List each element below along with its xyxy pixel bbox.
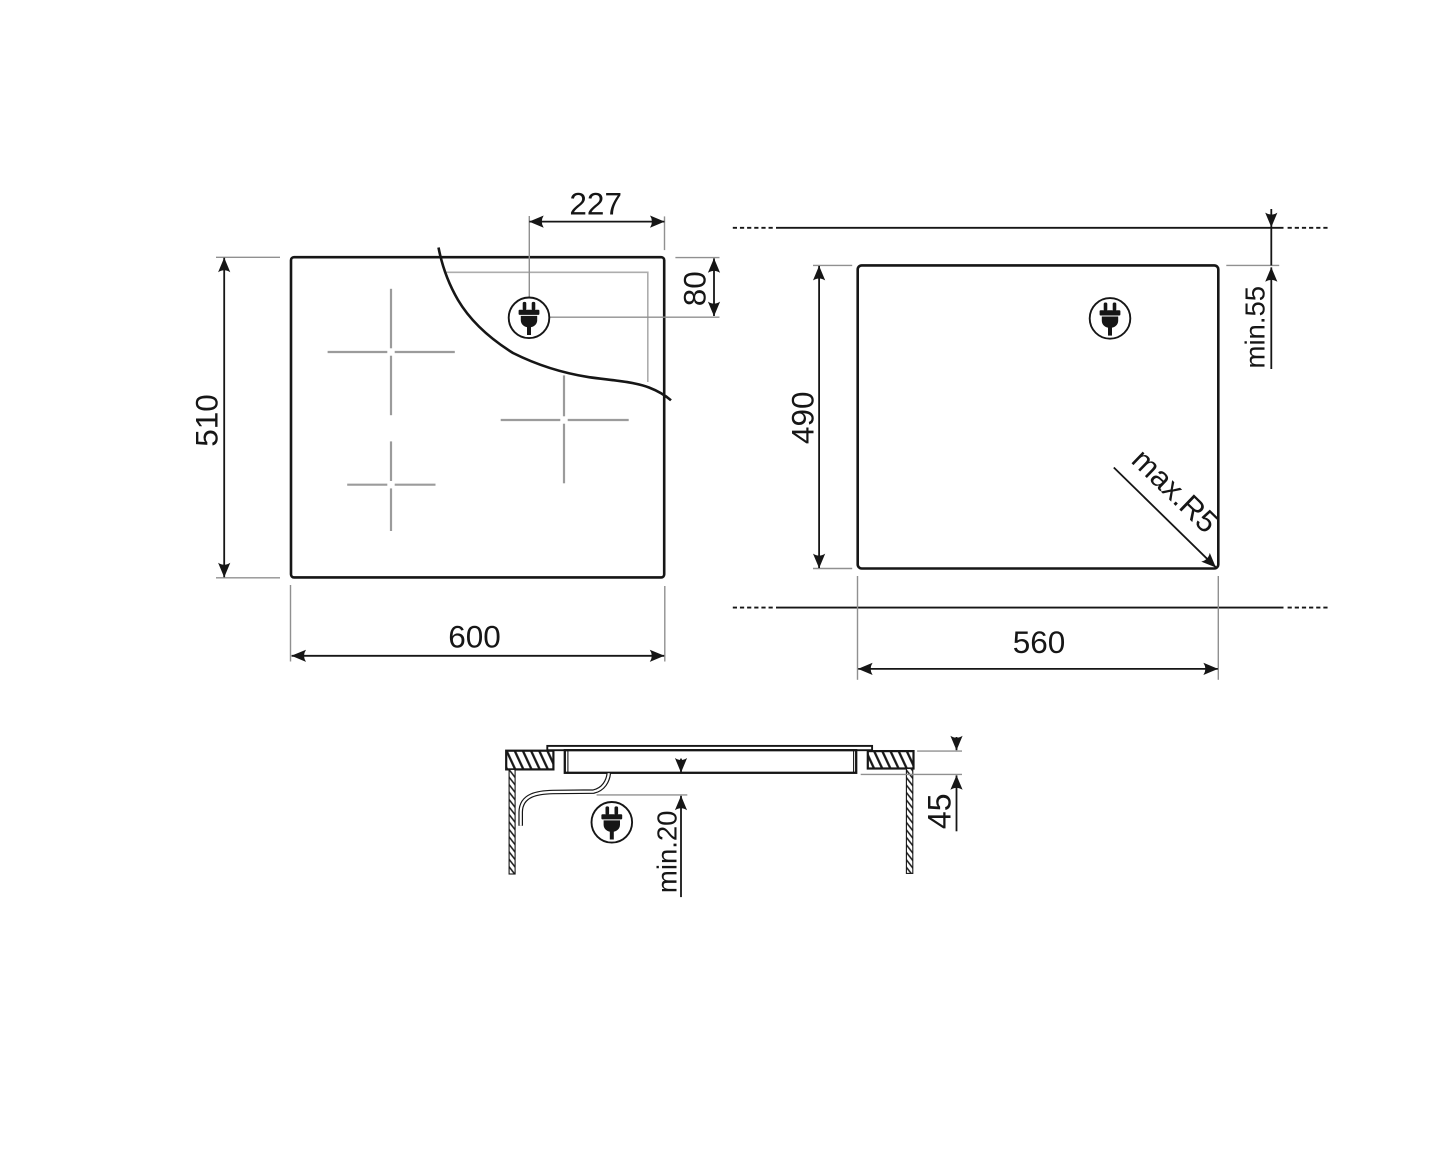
svg-text:600: 600	[448, 619, 501, 655]
svg-text:490: 490	[785, 392, 821, 445]
svg-text:min.20: min.20	[651, 811, 682, 894]
svg-text:min.55: min.55	[1240, 286, 1271, 369]
svg-text:227: 227	[569, 185, 622, 221]
svg-text:80: 80	[677, 271, 713, 306]
svg-text:45: 45	[922, 794, 958, 830]
svg-text:560: 560	[1013, 624, 1066, 660]
svg-text:510: 510	[188, 394, 224, 447]
